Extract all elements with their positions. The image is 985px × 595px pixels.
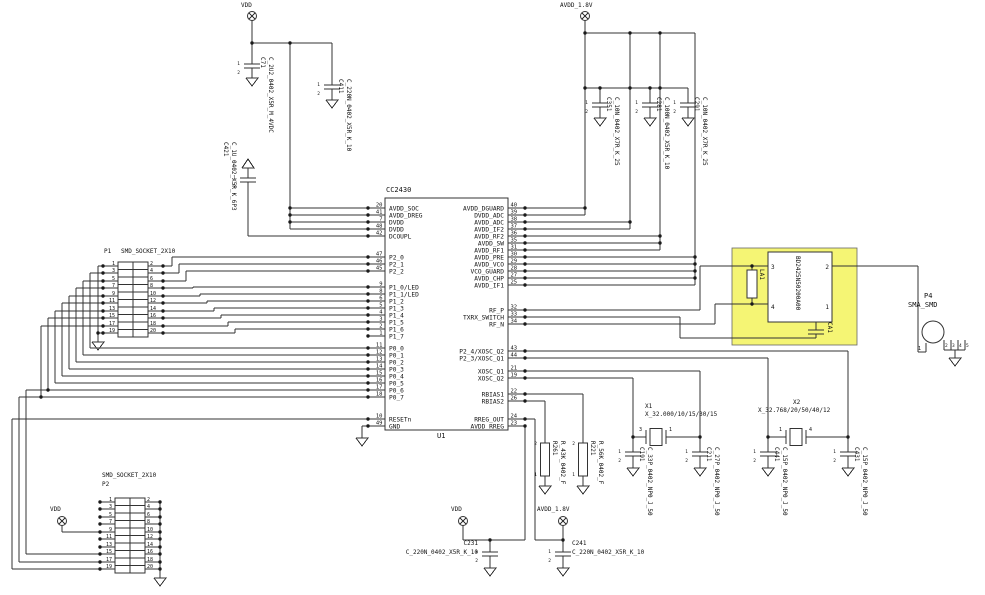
ic-pin-number: 18 bbox=[376, 392, 383, 398]
junction-dot bbox=[523, 213, 526, 216]
ic-pin-name: AVDD_IF2 bbox=[474, 226, 504, 233]
ic-pin-name: RBIAS1 bbox=[482, 391, 505, 398]
junction-dot bbox=[161, 301, 164, 304]
ground-icon bbox=[644, 118, 656, 126]
ground-icon bbox=[92, 342, 104, 350]
cap-pin-number: 2 bbox=[753, 458, 756, 464]
ic-pin-name: AVDD_SW bbox=[478, 240, 504, 247]
balun-pin-number: 1 bbox=[825, 304, 829, 311]
junction-dot bbox=[523, 262, 526, 265]
cap-pin-number: 2 bbox=[618, 458, 621, 464]
ic-pin-number: 49 bbox=[376, 421, 383, 427]
cap-pin-number: 1 bbox=[317, 82, 320, 88]
ic-pin-name: P1_3 bbox=[389, 305, 404, 312]
ic-pin-number: 44 bbox=[511, 353, 518, 359]
ic-pin-number: 10 bbox=[376, 414, 383, 420]
ground-icon bbox=[949, 358, 961, 366]
junction-dot bbox=[658, 241, 661, 244]
junction-dot bbox=[523, 269, 526, 272]
balun-pin-number: 4 bbox=[771, 304, 775, 311]
junction-dot bbox=[96, 331, 99, 334]
junction-dot bbox=[101, 271, 104, 274]
ic-pin-number: 45 bbox=[376, 266, 383, 272]
cap-pin-number: 2 bbox=[317, 91, 320, 97]
socket-pin-number: 2 bbox=[150, 261, 153, 267]
ic-pin-number: 12 bbox=[376, 350, 383, 356]
socket-pin-number: 13 bbox=[109, 306, 115, 312]
junction-dot bbox=[158, 500, 161, 503]
crystal-pin-number: 3 bbox=[639, 427, 642, 433]
crystal-pin-number: 1 bbox=[669, 427, 672, 433]
socket-pin-number: 7 bbox=[112, 283, 115, 289]
ground-up-icon bbox=[242, 159, 254, 168]
junction-dot bbox=[101, 301, 104, 304]
junction-dot bbox=[158, 515, 161, 518]
resistor-symbol[interactable] bbox=[541, 443, 550, 476]
junction-dot bbox=[98, 552, 101, 555]
ic-pin-name: RF_P bbox=[489, 307, 504, 314]
cap-pin-number: 2 bbox=[673, 109, 676, 115]
junction-dot bbox=[366, 327, 369, 330]
junction-dot bbox=[598, 86, 601, 89]
ic-pin-name: P2_4/XOSC_Q2 bbox=[459, 348, 504, 355]
junction-dot bbox=[628, 86, 631, 89]
ground-icon bbox=[154, 578, 166, 586]
cap-pin-number: 1 bbox=[833, 449, 836, 455]
cap-pin-number: 1 bbox=[618, 449, 621, 455]
ic-pin-number: 16 bbox=[376, 378, 383, 384]
junction-dot bbox=[523, 308, 526, 311]
junction-dot bbox=[161, 316, 164, 319]
p4-pin-number: 4 bbox=[959, 343, 962, 349]
junction-dot bbox=[161, 331, 164, 334]
junction-dot bbox=[523, 276, 526, 279]
junction-dot bbox=[628, 31, 631, 34]
cap-pin-number: 1 bbox=[753, 449, 756, 455]
junction-dot bbox=[561, 538, 564, 541]
ic-pin-name: AVDD_SOC bbox=[389, 205, 419, 212]
ic-pin-number: 40 bbox=[511, 203, 518, 209]
ic-pin-name: P0_6 bbox=[389, 387, 404, 394]
ground-icon bbox=[842, 468, 854, 476]
junction-dot bbox=[366, 220, 369, 223]
ic-pin-number: 31 bbox=[511, 245, 518, 251]
sma-connector-body[interactable] bbox=[922, 321, 944, 343]
socket-pin-number: 20 bbox=[147, 564, 153, 570]
ic-pin-name: P0_4 bbox=[389, 373, 404, 380]
junction-dot bbox=[101, 294, 104, 297]
ground-icon bbox=[682, 118, 694, 126]
ic-pin-number: 3 bbox=[379, 317, 382, 323]
junction-dot bbox=[98, 507, 101, 510]
ground-icon bbox=[246, 78, 258, 86]
junction-dot bbox=[288, 206, 291, 209]
junction-dot bbox=[366, 262, 369, 265]
cap-pin-number: 2 bbox=[237, 70, 240, 76]
ic-pin-number: 1 bbox=[379, 331, 382, 337]
ic-pin-number: 8 bbox=[379, 289, 382, 295]
junction-dot bbox=[693, 276, 696, 279]
ic-pin-name: P2_1 bbox=[389, 261, 404, 268]
cap-pin-number: 1 bbox=[233, 175, 236, 181]
socket-pin-number: 10 bbox=[147, 527, 153, 533]
ic-pin-number: 28 bbox=[511, 266, 518, 272]
junction-dot bbox=[158, 507, 161, 510]
junction-dot bbox=[366, 417, 369, 420]
junction-dot bbox=[658, 31, 661, 34]
socket-pin-number: 12 bbox=[150, 298, 156, 304]
junction-dot bbox=[366, 388, 369, 391]
junction-dot bbox=[98, 567, 101, 570]
junction-dot bbox=[523, 220, 526, 223]
ic-pin-name: P0_3 bbox=[389, 366, 404, 373]
ic-pin-name: P1_1/LED bbox=[389, 291, 419, 298]
p4-pin-number: 1 bbox=[918, 346, 921, 352]
junction-dot bbox=[523, 283, 526, 286]
junction-dot bbox=[366, 395, 369, 398]
junction-dot bbox=[158, 530, 161, 533]
socket-pin-number: 17 bbox=[106, 557, 112, 563]
socket-pin-number: 4 bbox=[150, 268, 153, 274]
junction-dot bbox=[488, 538, 491, 541]
socket-pin-number: 7 bbox=[109, 519, 112, 525]
crystal-symbol[interactable] bbox=[790, 429, 802, 446]
junction-dot bbox=[693, 255, 696, 258]
ic-pin-name: VCO_GUARD bbox=[470, 268, 504, 275]
ic-pin-number: 38 bbox=[511, 217, 518, 223]
ic-pin-number: 32 bbox=[511, 305, 518, 311]
junction-dot bbox=[523, 392, 526, 395]
junction-dot bbox=[366, 227, 369, 230]
junction-dot bbox=[366, 367, 369, 370]
socket-pin-number: 16 bbox=[150, 313, 156, 319]
junction-dot bbox=[523, 369, 526, 372]
ic-pin-number: 5 bbox=[379, 303, 382, 309]
junction-dot bbox=[523, 234, 526, 237]
junction-dot bbox=[288, 213, 291, 216]
cap-pin-number: 2 bbox=[233, 184, 236, 190]
junction-dot bbox=[523, 255, 526, 258]
socket-pin-number: 10 bbox=[150, 291, 156, 297]
socket-pin-number: 12 bbox=[147, 534, 153, 540]
junction-dot bbox=[161, 294, 164, 297]
junction-dot bbox=[583, 86, 586, 89]
crystal-pin-number: 4 bbox=[809, 427, 812, 433]
ic-pin-number: 13 bbox=[376, 357, 383, 363]
junction-dot bbox=[523, 356, 526, 359]
junction-dot bbox=[98, 515, 101, 518]
ic-pin-name: P2_0 bbox=[389, 254, 404, 261]
ic-pin-number: 46 bbox=[376, 259, 383, 265]
p4-pin-number: 3 bbox=[952, 343, 955, 349]
ic-pin-name: P1_4 bbox=[389, 312, 404, 319]
junction-dot bbox=[523, 227, 526, 230]
junction-dot bbox=[523, 241, 526, 244]
junction-dot bbox=[158, 567, 161, 570]
junction-dot bbox=[366, 306, 369, 309]
junction-dot bbox=[366, 346, 369, 349]
socket-pin-number: 11 bbox=[106, 534, 112, 540]
socket-pin-number: 6 bbox=[147, 512, 150, 518]
ic-pin-number: 7 bbox=[379, 217, 382, 223]
ic-pin-number: 48 bbox=[376, 224, 383, 230]
socket-pin-number: 15 bbox=[109, 313, 115, 319]
ic-pin-name: AVDD_RF2 bbox=[474, 233, 504, 240]
junction-dot bbox=[583, 206, 586, 209]
socket-pin-number: 3 bbox=[109, 504, 112, 510]
cap-pin-number: 2 bbox=[635, 109, 638, 115]
junction-dot bbox=[658, 86, 661, 89]
ic-pin-name: P0_5 bbox=[389, 380, 404, 387]
junction-dot bbox=[98, 530, 101, 533]
junction-dot bbox=[523, 322, 526, 325]
junction-dot bbox=[161, 271, 164, 274]
junction-dot bbox=[161, 324, 164, 327]
junction-dot bbox=[846, 435, 849, 438]
ic-pin-name: RBIAS2 bbox=[482, 398, 505, 405]
ic-pin-number: 25 bbox=[511, 280, 518, 286]
ic-pin-number: 33 bbox=[511, 312, 518, 318]
junction-dot bbox=[523, 417, 526, 420]
junction-dot bbox=[693, 269, 696, 272]
junction-dot bbox=[523, 206, 526, 209]
cap-pin-number: 1 bbox=[635, 100, 638, 106]
junction-dot bbox=[523, 424, 526, 427]
ic-pin-number: 41 bbox=[376, 210, 383, 216]
socket-pin-number: 18 bbox=[150, 321, 156, 327]
p4-pin-number: 2 bbox=[945, 343, 948, 349]
socket-pin-number: 14 bbox=[147, 542, 153, 548]
ic-pin-number: 42 bbox=[376, 231, 383, 237]
junction-dot bbox=[366, 374, 369, 377]
junction-dot bbox=[158, 545, 161, 548]
ic-pin-number: 47 bbox=[376, 252, 383, 258]
ground-icon bbox=[326, 100, 338, 108]
socket-pin-number: 15 bbox=[106, 549, 112, 555]
junction-dot bbox=[101, 264, 104, 267]
res-pin-number: 1 bbox=[534, 472, 537, 478]
schematic-drawing: 324120AVDD_SOC41AVDD_DREG7DVDD48DVDD42DC… bbox=[0, 0, 985, 595]
junction-dot bbox=[750, 264, 753, 267]
cap-pin-number: 1 bbox=[585, 100, 588, 106]
ic-pin-name: P0_1 bbox=[389, 352, 404, 359]
ic-pin-number: 9 bbox=[379, 282, 382, 288]
res-pin-number: 2 bbox=[572, 441, 575, 447]
cap-pin-number: 1 bbox=[237, 61, 240, 67]
junction-dot bbox=[366, 334, 369, 337]
ic-pin-name: AVDD_ADC bbox=[474, 219, 504, 226]
ic-pin-number: 21 bbox=[511, 366, 518, 372]
ic-pin-number: 30 bbox=[511, 252, 518, 258]
schematic-canvas: 324120AVDD_SOC41AVDD_DREG7DVDD48DVDD42DC… bbox=[0, 0, 985, 595]
socket-pin-number: 1 bbox=[109, 497, 112, 503]
junction-dot bbox=[523, 399, 526, 402]
ic-pin-number: 37 bbox=[511, 224, 518, 230]
junction-dot bbox=[698, 435, 701, 438]
junction-dot bbox=[101, 324, 104, 327]
socket-pin-number: 1 bbox=[112, 261, 115, 267]
res-pin-number: 2 bbox=[534, 441, 537, 447]
junction-dot bbox=[366, 292, 369, 295]
junction-dot bbox=[98, 537, 101, 540]
ic-pin-name: TXRX_SWITCH bbox=[463, 314, 504, 321]
ic-pin-name: AVDD_RREG bbox=[470, 423, 504, 430]
junction-dot bbox=[101, 309, 104, 312]
ic-pin-number: 6 bbox=[379, 296, 382, 302]
socket-pin-number: 13 bbox=[106, 542, 112, 548]
junction-dot bbox=[46, 388, 49, 391]
ic-pin-name: XOSC_Q1 bbox=[478, 368, 504, 375]
ic-pin-number: 15 bbox=[376, 371, 383, 377]
ic-pin-name: RESETn bbox=[389, 416, 412, 423]
junction-dot bbox=[366, 424, 369, 427]
ic-pin-name: RF_N bbox=[489, 321, 504, 328]
junction-dot bbox=[98, 500, 101, 503]
balun-pin-number: 3 bbox=[771, 264, 775, 271]
socket-pin-number: 16 bbox=[147, 549, 153, 555]
junction-dot bbox=[523, 315, 526, 318]
ground-icon bbox=[594, 118, 606, 126]
socket-pin-number: 9 bbox=[109, 527, 112, 533]
junction-dot bbox=[366, 285, 369, 288]
crystal-pin-number: 1 bbox=[779, 427, 782, 433]
ground-icon bbox=[356, 438, 368, 446]
ic-pin-name: AVDD_DGUARD bbox=[463, 205, 504, 212]
junction-dot bbox=[98, 560, 101, 563]
socket-pin-number: 9 bbox=[112, 291, 115, 297]
junction-dot bbox=[366, 299, 369, 302]
junction-dot bbox=[583, 31, 586, 34]
socket-pin-number: 14 bbox=[150, 306, 156, 312]
ic-pin-number: 23 bbox=[511, 421, 518, 427]
junction-dot bbox=[366, 269, 369, 272]
ic-pin-name: P2_2 bbox=[389, 268, 404, 275]
ic-pin-name: GND bbox=[389, 423, 400, 430]
junction-dot bbox=[158, 560, 161, 563]
ic-pin-name: P0_0 bbox=[389, 345, 404, 352]
ic-pin-name: DCOUPL bbox=[389, 233, 412, 240]
ic-pin-number: 20 bbox=[376, 203, 383, 209]
ic-pin-number: 19 bbox=[511, 373, 518, 379]
junction-dot bbox=[98, 522, 101, 525]
junction-dot bbox=[161, 309, 164, 312]
junction-dot bbox=[366, 313, 369, 316]
ground-icon bbox=[484, 568, 496, 576]
balun-inductor-symbol[interactable] bbox=[747, 270, 757, 298]
junction-dot bbox=[628, 220, 631, 223]
ground-icon bbox=[762, 468, 774, 476]
ic-pin-name: AVDD_PRE bbox=[474, 254, 504, 261]
socket-pin-number: 11 bbox=[109, 298, 115, 304]
ic-pin-number: 17 bbox=[376, 385, 383, 391]
junction-dot bbox=[98, 545, 101, 548]
junction-dot bbox=[523, 376, 526, 379]
ground-icon bbox=[539, 486, 551, 494]
ic-pin-number: 22 bbox=[511, 389, 518, 395]
crystal-symbol[interactable] bbox=[650, 429, 662, 446]
junction-dot bbox=[366, 360, 369, 363]
cap-pin-number: 2 bbox=[833, 458, 836, 464]
socket-pin-number: 3 bbox=[112, 268, 115, 274]
junction-dot bbox=[101, 316, 104, 319]
junction-dot bbox=[366, 255, 369, 258]
junction-dot bbox=[161, 264, 164, 267]
ic-pin-number: 14 bbox=[376, 364, 383, 370]
cap-pin-number: 2 bbox=[548, 558, 551, 564]
ic-pin-number: 11 bbox=[376, 343, 383, 349]
junction-dot bbox=[158, 522, 161, 525]
junction-dot bbox=[693, 262, 696, 265]
ic-pin-name: P1_7 bbox=[389, 333, 404, 340]
cap-pin-number: 2 bbox=[685, 458, 688, 464]
junction-dot bbox=[161, 279, 164, 282]
ic-pin-name: XOSC_Q2 bbox=[478, 375, 504, 382]
junction-dot bbox=[766, 435, 769, 438]
ic-pin-name: DVDD_ADC bbox=[474, 212, 504, 219]
ic-pin-number: 29 bbox=[511, 259, 518, 265]
socket-pin-number: 5 bbox=[112, 276, 115, 282]
ic-pin-name: P1_0/LED bbox=[389, 284, 419, 291]
junction-dot bbox=[658, 234, 661, 237]
ic-pin-name: DVDD bbox=[389, 226, 404, 233]
ground-icon bbox=[577, 486, 589, 494]
ic-pin-name: P0_2 bbox=[389, 359, 404, 366]
junction-dot bbox=[101, 279, 104, 282]
junction-dot bbox=[101, 331, 104, 334]
ic-pin-number: 26 bbox=[511, 396, 518, 402]
ic-pin-name: P2_3/XOSC_Q1 bbox=[459, 355, 504, 362]
cap-pin-number: 1 bbox=[685, 449, 688, 455]
ground-icon bbox=[627, 468, 639, 476]
balun-pin-number: 2 bbox=[825, 264, 829, 271]
socket-pin-number: 4 bbox=[147, 504, 150, 510]
p4-pin-number: 5 bbox=[966, 343, 969, 349]
socket-pin-number: 2 bbox=[147, 497, 150, 503]
ic-pin-number: 39 bbox=[511, 210, 518, 216]
ic-pin-number: 24 bbox=[511, 414, 518, 420]
socket-pin-number: 8 bbox=[150, 283, 153, 289]
ic-pin-number: 36 bbox=[511, 231, 518, 237]
cap-pin-number: 2 bbox=[585, 109, 588, 115]
junction-dot bbox=[366, 213, 369, 216]
ic-pin-number: 34 bbox=[511, 319, 518, 325]
junction-dot bbox=[366, 234, 369, 237]
ic-pin-name: DVDD bbox=[389, 219, 404, 226]
ic-pin-number: 27 bbox=[511, 273, 518, 279]
resistor-symbol[interactable] bbox=[579, 443, 588, 476]
ic-pin-number: 35 bbox=[511, 238, 518, 244]
socket-pin-number: 19 bbox=[109, 328, 115, 334]
ground-icon bbox=[557, 568, 569, 576]
junction-dot bbox=[366, 320, 369, 323]
junction-dot bbox=[523, 248, 526, 251]
junction-dot bbox=[250, 41, 253, 44]
junction-dot bbox=[39, 395, 42, 398]
junction-dot bbox=[523, 349, 526, 352]
ic-pin-name: AVDD_CHP bbox=[474, 275, 504, 282]
junction-dot bbox=[366, 353, 369, 356]
ic-pin-name: AVDD_IF1 bbox=[474, 282, 504, 289]
junction-dot bbox=[366, 206, 369, 209]
socket-pin-number: 8 bbox=[147, 519, 150, 525]
junction-dot bbox=[158, 552, 161, 555]
socket-pin-number: 19 bbox=[106, 564, 112, 570]
junction-dot bbox=[366, 381, 369, 384]
res-pin-number: 1 bbox=[572, 472, 575, 478]
junction-dot bbox=[750, 302, 753, 305]
balun-symbol[interactable] bbox=[768, 252, 832, 322]
ic-pin-name: AVDD_DREG bbox=[389, 212, 423, 219]
